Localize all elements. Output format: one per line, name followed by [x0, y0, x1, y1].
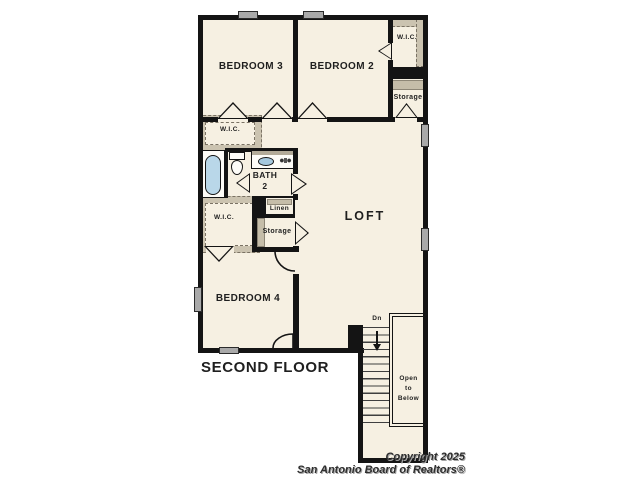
wall: [327, 117, 395, 122]
wic-top-label: W.I.C.: [390, 35, 424, 42]
copyright-line2: San Antonio Board of Realtors®: [275, 464, 465, 477]
copyright-line1: Copyright 2025: [275, 451, 465, 464]
storage-top-label: Storage: [390, 94, 426, 101]
window: [421, 124, 429, 147]
linen-label: Linen: [264, 206, 295, 213]
bedroom-4-label: BEDROOM 4: [196, 294, 300, 304]
open-to-below-label-line3: Below: [392, 396, 425, 403]
open-to-below-label-line1: Open: [392, 376, 425, 383]
railing-inner-line: [392, 316, 425, 424]
window: [421, 228, 429, 251]
bedroom-3-label: BEDROOM 3: [198, 62, 304, 72]
window: [219, 347, 239, 354]
faucet-icon: [279, 156, 292, 165]
window: [238, 11, 258, 19]
open-to-below-label-line2: to: [392, 386, 425, 393]
bathtub-basin: [205, 155, 221, 195]
bedroom-2-label: BEDROOM 2: [294, 62, 390, 72]
wall: [248, 117, 262, 122]
door-swing-arc: [274, 249, 296, 275]
sink: [258, 157, 274, 166]
door-swing-arc: [272, 333, 294, 350]
stair-wall-block: [348, 325, 363, 353]
vanity-backsplash: [252, 151, 293, 155]
floor-plan-canvas: BEDROOM 3 BEDROOM 2 BEDROOM 4 LOFT W.I.C…: [0, 0, 640, 480]
storage-top-shelf: [390, 80, 424, 90]
wic-lower-interior: [205, 203, 253, 246]
wic-lower-label: W.I.C.: [199, 215, 249, 222]
copyright-watermark: Copyright 2025 San Antonio Board of Real…: [275, 451, 465, 476]
stairs-down-arrowhead: [373, 344, 381, 351]
stairs-down-label: Dn: [367, 316, 387, 323]
bath-2-label-line2: 2: [240, 182, 290, 191]
wall: [390, 67, 428, 79]
bath-2-label-line1: BATH: [240, 171, 290, 180]
window: [303, 11, 324, 19]
floor-title: SECOND FLOOR: [201, 360, 351, 375]
wic-mid-label: W.I.C.: [204, 127, 256, 134]
storage-mid-label: Storage: [258, 228, 296, 235]
open-to-below-railing: [389, 313, 428, 427]
loft-label: LOFT: [310, 210, 420, 223]
toilet-tank: [229, 152, 245, 160]
wall: [417, 117, 428, 122]
wall: [198, 117, 218, 122]
